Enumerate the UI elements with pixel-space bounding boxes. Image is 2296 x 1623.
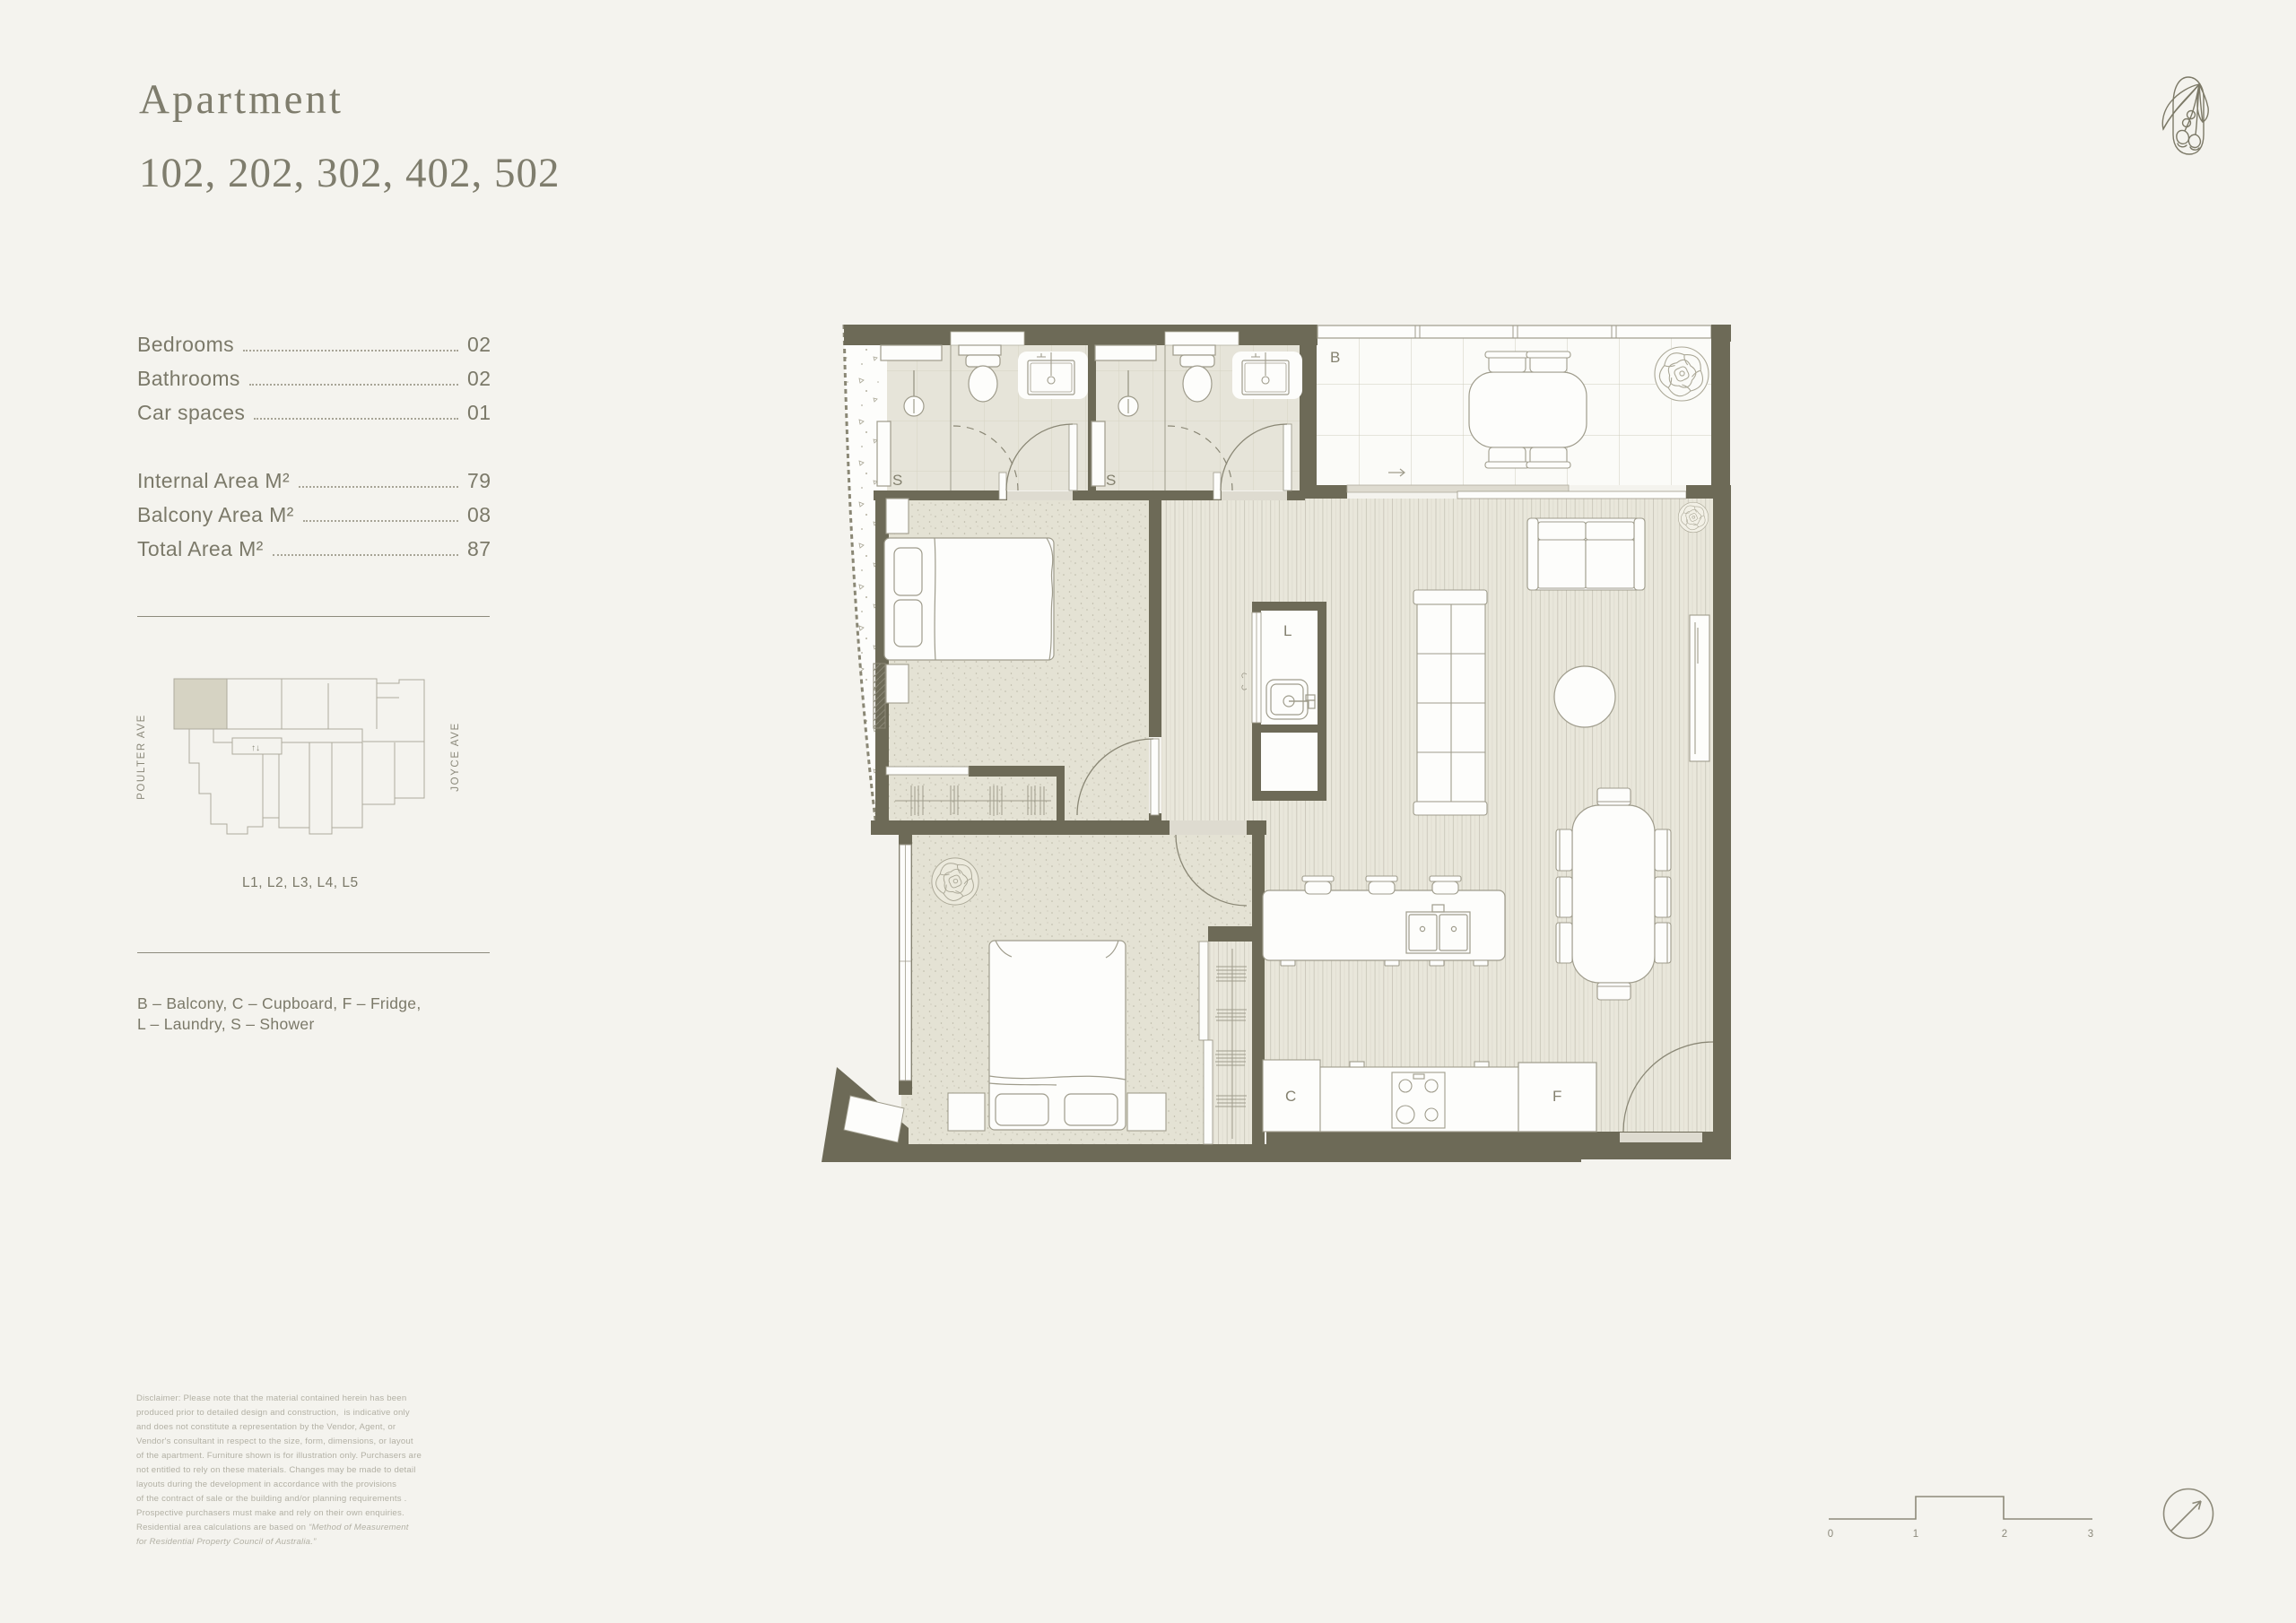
svg-text:S: S [1106, 472, 1116, 489]
svg-text:L: L [1283, 622, 1291, 639]
svg-text:B: B [1330, 349, 1340, 366]
svg-text:C: C [1285, 1088, 1296, 1105]
svg-text:F: F [1552, 1088, 1561, 1105]
svg-text:3: 3 [2088, 1529, 2093, 1540]
svg-text:0: 0 [1828, 1529, 1833, 1540]
svg-text:S: S [892, 472, 902, 489]
svg-text:↑↓: ↑↓ [251, 743, 260, 753]
svg-text:2: 2 [2002, 1529, 2007, 1540]
svg-text:1: 1 [1913, 1529, 1918, 1540]
